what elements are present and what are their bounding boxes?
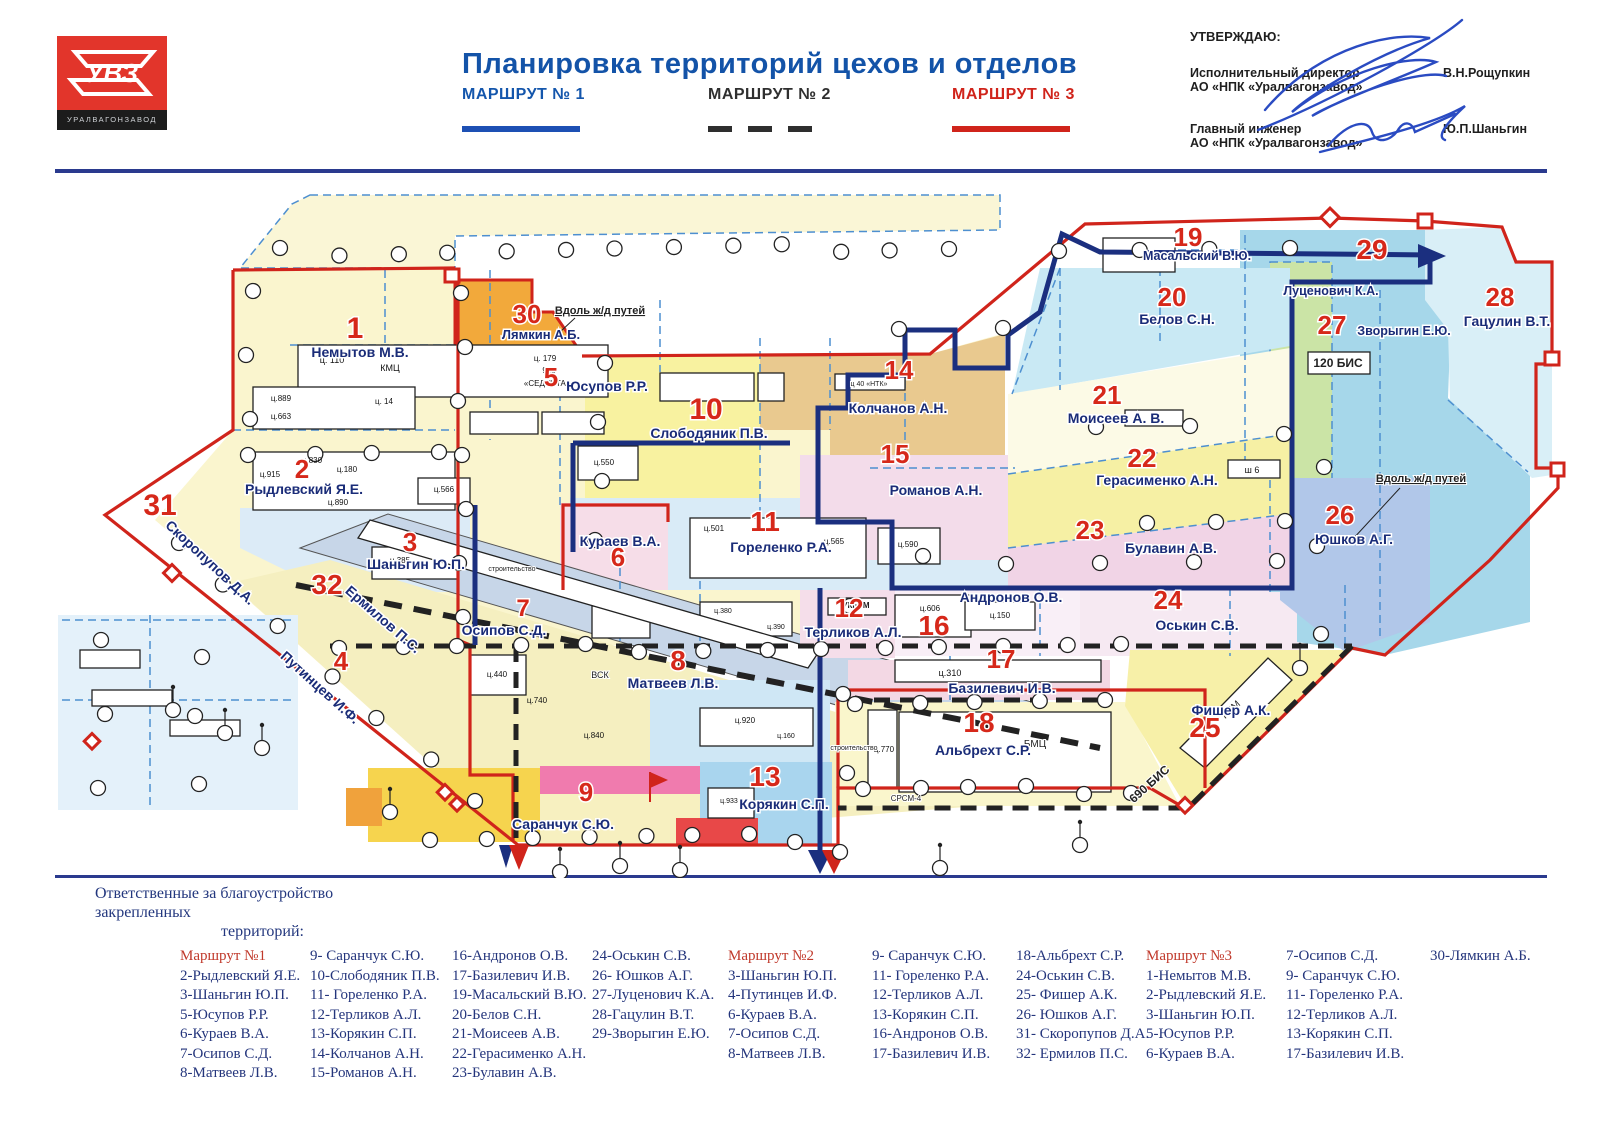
zone-27-name: Луценович К.А. [1283,284,1378,298]
building-label-b920: ц.920 [735,716,756,725]
circled-number-marker [243,412,258,427]
circled-number-marker [391,247,406,262]
circled-number-marker [878,641,893,656]
zone-24-name: Оськин С.В. [1155,617,1238,633]
circled-number-marker [742,827,757,842]
zone-3-number: 3 [403,527,417,557]
zone-22-number: 22 [1128,443,1157,473]
legend-entry: 24-Оськин С.В. [592,947,714,967]
legend-route3-col3: 30-Лямкин А.Б. [1430,947,1531,967]
zone-25-name: Фишер А.К. [1192,702,1271,718]
circled-number-marker [559,242,574,257]
legend-route1-col4: 24-Оськин С.В.26- Юшков А.Г.27-Луценович… [592,947,714,1045]
circled-number-marker [455,448,470,463]
legend-entry: 12-Терликов А.Л. [1286,1006,1404,1026]
zone-19-name: Масальский В.Ю. [1143,249,1251,263]
zone-3-name: Шаньгин Ю.П. [367,556,465,572]
legend-entry: 32- Ермилов П.С. [1016,1045,1149,1065]
circled-number-marker [1098,693,1113,708]
zone-24-number: 24 [1154,585,1183,615]
circled-number-marker [591,415,606,430]
annotation-rail2: Вдоль ж/д путей [1376,473,1466,485]
legend-entry: 10-Слободяник П.В. [310,967,440,987]
building-label-b501: ц.501 [704,524,725,533]
building-label-b889: ц.889 [271,394,292,403]
building-label-b310: ц.310 [939,668,962,678]
route-key-2: МАРШРУТ № 2 [708,86,831,132]
circled-number-marker [454,286,469,301]
annotation-stroy1: строительство [488,566,535,573]
building-label-b440: ц.440 [487,670,508,679]
legend-entry: 9- Саранчук С.Ю. [310,947,440,967]
circled-number-marker [273,241,288,256]
zone-29-number: 29 [1356,234,1387,265]
circled-number-marker [856,782,871,797]
circled-number-marker [479,832,494,847]
circled-number-marker [598,356,613,371]
circled-number-marker [239,348,254,363]
circled-number-marker [332,248,347,263]
circled-number-marker [424,752,439,767]
circled-number-marker [834,244,849,259]
legend-entry: 30-Лямкин А.Б. [1430,947,1531,967]
circled-number-marker [913,696,928,711]
legend-route2-header: Маршрут №2 [728,947,837,967]
circled-number-marker [892,322,907,337]
zone-16-name: Андронов О.В. [960,589,1063,605]
flag-marker [1073,820,1088,853]
legend-entry: 26- Юшков А.Г. [592,967,714,987]
legend-entry: 20-Белов С.Н. [452,1006,587,1026]
circled-number-marker [458,340,473,355]
circled-number-marker [607,241,622,256]
circled-number-marker [996,321,1011,336]
legend-route1-header: Маршрут №1 [180,947,300,967]
circled-number-marker [685,828,700,843]
route-3-swatch [952,126,1070,132]
circled-number-marker [1317,460,1332,475]
legend-entry: 11- Гореленко Р.А. [310,986,440,1006]
legend-entry: 16-Андронов О.В. [872,1025,990,1045]
circled-number-marker [1019,779,1034,794]
legend-entry: 7-Осипов С.Д. [1286,947,1404,967]
circled-number-marker [961,780,976,795]
legend-entry: 11- Гореленко Р.А. [1286,986,1404,1006]
zone-19-number: 19 [1174,222,1203,252]
legend-entry: 29-Зворыгин Е.Ю. [592,1025,714,1045]
building-label-b14: ц. 14 [375,397,393,406]
flag-marker [553,847,568,878]
scanned-territory-plan: { "header": { "logo_text": "УВЗ", "logo_… [0,0,1600,1131]
legend-route2-col2: 9- Саранчук С.Ю.11- Гореленко Р.А.12-Тер… [872,947,990,1064]
legend-entry: 22-Герасименко А.Н. [452,1045,587,1065]
circled-number-marker [195,650,210,665]
zone-13-name: Корякин С.П. [739,796,829,812]
legend-entry: 17-Базилевич И.В. [872,1045,990,1065]
circled-number-marker [241,448,256,463]
circled-number-marker [1270,554,1285,569]
circled-number-marker [639,829,654,844]
legend-entry: 4-Путинцев И.Ф. [728,986,837,1006]
zone-31-number: 31 [143,489,176,522]
annotation-srsm: СРСМ-4 [891,794,922,803]
circled-number-marker [1209,515,1224,530]
legend-entry: 25- Фишер А.К. [1016,986,1149,1006]
zone-10-name: Слободяник П.В. [650,425,767,441]
circled-number-marker [631,645,646,660]
route-2-label: МАРШРУТ № 2 [708,86,831,104]
circled-number-marker [1278,514,1293,529]
circled-number-marker [833,845,848,860]
zone-18-number: 18 [963,707,994,738]
legend-route2-col3: 18-Альбрехт С.Р.24-Оськин С.В.25- Фишер … [1016,947,1149,1064]
legend-entry: 7-Осипов С.Д. [180,1045,300,1065]
zone-9-pink-patch [540,766,700,794]
legend-route2-col1: Маршрут №23-Шаньгин Ю.П.4-Путинцев И.Ф.6… [728,947,837,1064]
building-label-b180: ц.180 [337,465,358,474]
annotation-stroy2: строительство [830,745,877,752]
zone-28-number: 28 [1486,282,1515,312]
circled-number-marker [525,831,540,846]
territory-map: ц. 110КМЦц. 179915«СЕДУНТАГ»ц.889ц.663ц.… [0,175,1600,878]
circled-number-marker [270,619,285,634]
circled-number-marker [514,638,529,653]
building-label-b933: ц.933 [720,798,738,805]
zone-14-number: 14 [885,355,914,385]
legend-entry: 14-Колчанов А.Н. [310,1045,440,1065]
legend-route3-col1: Маршрут №31-Немытов М.В.2-Рыдлевский Я.Е… [1146,947,1266,1064]
zone-15-number: 15 [881,439,910,469]
uvz-logo: УВЗ УРАЛВАГОНЗАВОД [57,36,167,132]
zone-17-number: 17 [987,644,1016,674]
signature-director [1258,20,1462,130]
circled-number-marker [188,709,203,724]
zone-7-name: Осипов С.Д. [462,622,547,638]
circled-number-marker [882,243,897,258]
legend-entry: 5-Юсупов Р.Р. [1146,1025,1266,1045]
header-divider [55,169,1547,173]
building-label-b840: ц.840 [584,731,605,740]
circled-number-marker [1283,241,1298,256]
zone-1-number: 1 [347,312,364,345]
page-title: Планировка территорий цехов и отделов [462,48,1077,81]
zone-17-name: Базилевич И.В. [948,680,1055,696]
building-label-b380: ц.380 [714,608,732,615]
circled-number-marker [760,643,775,658]
legend-entry: 13-Корякин С.П. [1286,1025,1404,1045]
legend-entry: 12-Терликов А.Л. [310,1006,440,1026]
legend-route1-col1: Маршрут №12-Рыдлевский Я.Е.3-Шаньгин Ю.П… [180,947,300,1084]
building-label-b663: ц.663 [271,412,292,421]
zone-20-number: 20 [1158,282,1187,312]
zone-11-name: Гореленко Р.А. [730,539,831,555]
zone-21-name: Моисеев А. В. [1068,410,1165,426]
zone-7-number: 7 [516,595,529,622]
building-label-bsh6: ш 6 [1245,465,1260,475]
legend-entry: 28-Гацулин В.Т. [592,1006,714,1026]
zone-29-name: Зворыгин Е.Ю. [1357,324,1450,338]
route-2-swatch [708,126,826,132]
legend-entry: 8-Матвеев Л.В. [728,1045,837,1065]
circled-number-marker [1060,638,1075,653]
legend-entry: 8-Матвеев Л.В. [180,1064,300,1084]
annotation-rail1: Вдоль ж/д путей [555,305,645,317]
circled-number-marker [369,711,384,726]
circled-number-marker [840,766,855,781]
legend-route1-col3: 16-Андронов О.В.17-Базилевич И.В.19-Маса… [452,947,587,1084]
circled-number-marker [774,237,789,252]
zone-15-name: Романов А.Н. [890,482,983,498]
zone-21-number: 21 [1093,380,1122,410]
legend-entry: 12-Терликов А.Л. [872,986,990,1006]
circled-number-marker [1093,556,1108,571]
legend-entry: 15-Романов А.Н. [310,1064,440,1084]
zone-12-number: 12 [835,593,864,623]
legend-entry: 18-Альбрехт С.Р. [1016,947,1149,967]
circled-number-marker [1140,516,1155,531]
route-1-swatch [462,126,580,132]
legend-entry: 23-Булавин А.В. [452,1064,587,1084]
circled-number-marker [1114,637,1129,652]
legend-entry: 19-Масальский В.Ю. [452,986,587,1006]
legend-entry: 17-Базилевич И.В. [452,967,587,987]
legend-title-line1: Ответственные за благоустройство закрепл… [95,884,430,922]
circled-number-marker [1077,787,1092,802]
legend-entry: 6-Кураев В.А. [180,1025,300,1045]
zone-23-name: Булавин А.В. [1125,540,1217,556]
zone-26-name: Юшков А.Г. [1315,531,1393,547]
zone-2-number: 2 [295,454,309,484]
legend-entry: 7-Осипов С.Д. [728,1025,837,1045]
legend-entry: 17-Базилевич И.В. [1286,1045,1404,1065]
legend-entry: 21-Моисеев А.В. [452,1025,587,1045]
zone-20-name: Белов С.Н. [1139,311,1215,327]
flag-marker [673,845,688,878]
legend-entry: 16-Андронов О.В. [452,947,587,967]
legend-entry: 3-Шаньгин Ю.П. [180,986,300,1006]
circled-number-marker [449,639,464,654]
legend-entry: 31- Скоропупов Д.А. [1016,1025,1149,1045]
legend-entry: 11- Гореленко Р.А. [872,967,990,987]
zone-5-number: 5 [544,362,558,392]
annotation-bis120: 120 БИС [1313,356,1363,370]
building-label-b150: ц.150 [990,611,1011,620]
uvz-logo-caption: УРАЛВАГОНЗАВОД [57,110,167,130]
circled-number-marker [696,644,711,659]
zone-23-number: 23 [1076,515,1105,545]
zone-11-number: 11 [750,506,780,537]
zone-8-name: Матвеев Л.В. [628,675,719,691]
circled-number-marker [423,833,438,848]
annotation-ntk: ц 40 «НТК» [851,381,888,388]
circled-number-marker [91,781,106,796]
circled-number-marker [192,777,207,792]
legend-entry: 6-Кураев В.А. [728,1006,837,1026]
circled-number-marker [440,245,455,260]
circled-number-marker [814,642,829,657]
circled-number-marker [459,502,474,517]
legend-title-line2: территорий: [95,922,430,941]
route-1-label: МАРШРУТ № 1 [462,86,585,104]
uvz-logo-glyph: УВЗ [57,36,167,110]
zone-30-number: 30 [513,299,542,329]
legend-route1-col2: 9- Саранчук С.Ю.10-Слободяник П.В.11- Го… [310,947,440,1084]
route-key-3: МАРШРУТ № 3 [952,86,1075,132]
legend-title: Ответственные за благоустройство закрепл… [95,884,430,941]
uvz-logo-red-box: УВЗ [57,36,167,110]
signatures [1250,18,1580,178]
route-3-label: МАРШРУТ № 3 [952,86,1075,104]
legend-entry: 9- Саранчук С.Ю. [1286,967,1404,987]
route-key-1: МАРШРУТ № 1 [462,86,585,132]
circled-number-marker [499,244,514,259]
building-label-b390: ц.390 [767,624,785,631]
annotation-vsk: ВСК [591,670,609,680]
circled-number-marker [246,284,261,299]
circled-number-marker [1052,244,1067,259]
zone-18-name: Альбрехт С.Р. [935,742,1031,758]
circled-number-marker [578,637,593,652]
svg-text:УВЗ: УВЗ [86,58,139,88]
zone-28-name: Гацулин В.Т. [1464,313,1550,329]
circled-number-marker [468,794,483,809]
circled-number-marker [94,633,109,648]
legend-entry: 26- Юшков А.Г. [1016,1006,1149,1026]
building-label-b160: ц.160 [777,733,795,740]
legend-entry: 24-Оськин С.В. [1016,967,1149,987]
zone-14-name: Колчанов А.Н. [849,400,948,416]
circled-number-marker [1314,627,1329,642]
building-label-b890: ц.890 [328,498,349,507]
zone-32-number: 32 [311,569,342,600]
zone-9-orange-patch [346,788,382,826]
circled-number-marker [1187,555,1202,570]
legend-route3-col2: 7-Осипов С.Д.9- Саранчук С.Ю.11- Горелен… [1286,947,1404,1064]
legend-entry: 3-Шаньгин Ю.П. [1146,1006,1266,1026]
signature-engineer [1320,106,1465,152]
legend-entry: 2-Рыдлевский Я.Е. [180,967,300,987]
circled-number-marker [836,687,851,702]
legend-entry: 27-Луценович К.А. [592,986,714,1006]
circled-number-marker [848,697,863,712]
legend-route3-header: Маршрут №3 [1146,947,1266,967]
zone-5-name: Юсупов Р.Р. [566,378,648,394]
legend-entry: 13-Корякин С.П. [872,1006,990,1026]
circled-number-marker [788,835,803,850]
legend-entry: 5-Юсупов Р.Р. [180,1006,300,1026]
zone-9-number: 9 [579,777,593,807]
zone-4-number: 4 [334,646,349,676]
legend-entry: 3-Шаньгин Ю.П. [728,967,837,987]
legend-entry: 13-Корякин С.П. [310,1025,440,1045]
circled-number-marker [595,474,610,489]
circled-number-marker [98,707,113,722]
circled-number-marker [931,640,946,655]
flag-marker [933,843,948,876]
zone-16-number: 16 [918,610,949,641]
building-label-b566: ц.566 [434,485,455,494]
zone-1-name: Немытов М.В. [311,344,408,360]
zone-27-number: 27 [1318,310,1347,340]
circled-number-marker [916,549,931,564]
building-label-b550: ц.550 [594,458,615,467]
legend-entry: 9- Саранчук С.Ю. [872,947,990,967]
building-label-b740: ц.740 [527,696,548,705]
circled-number-marker [942,242,957,257]
zone-22-name: Герасименко А.Н. [1096,472,1218,488]
circled-number-marker [726,238,741,253]
zone-8-number: 8 [670,645,686,676]
circled-number-marker [666,240,681,255]
circled-number-marker [1183,419,1198,434]
zone-9-name: Саранчук С.Ю. [512,816,614,832]
zone-6-name: Кураев В.А. [580,533,661,549]
circled-number-marker [432,445,447,460]
building-label-b915: ц.915 [260,470,281,479]
zone-12-name: Терликов А.Л. [805,624,902,640]
zone-26-number: 26 [1326,500,1355,530]
zone-10-number: 10 [689,393,722,426]
building-label-b590: ц.590 [898,540,919,549]
zone-30-name: Лямкин А.Б. [502,327,580,342]
circled-number-marker [1277,427,1292,442]
legend-entry: 1-Немытов М.В. [1146,967,1266,987]
building-label-bkmc: КМЦ [380,363,400,373]
zone-13-number: 13 [749,761,780,792]
circled-number-marker [999,557,1014,572]
zone-2-name: Рыдлевский Я.Е. [245,481,363,497]
legend-entry: 2-Рыдлевский Я.Е. [1146,986,1266,1006]
circled-number-marker [364,446,379,461]
legend-entry: 6-Кураев В.А. [1146,1045,1266,1065]
circled-number-marker [451,394,466,409]
